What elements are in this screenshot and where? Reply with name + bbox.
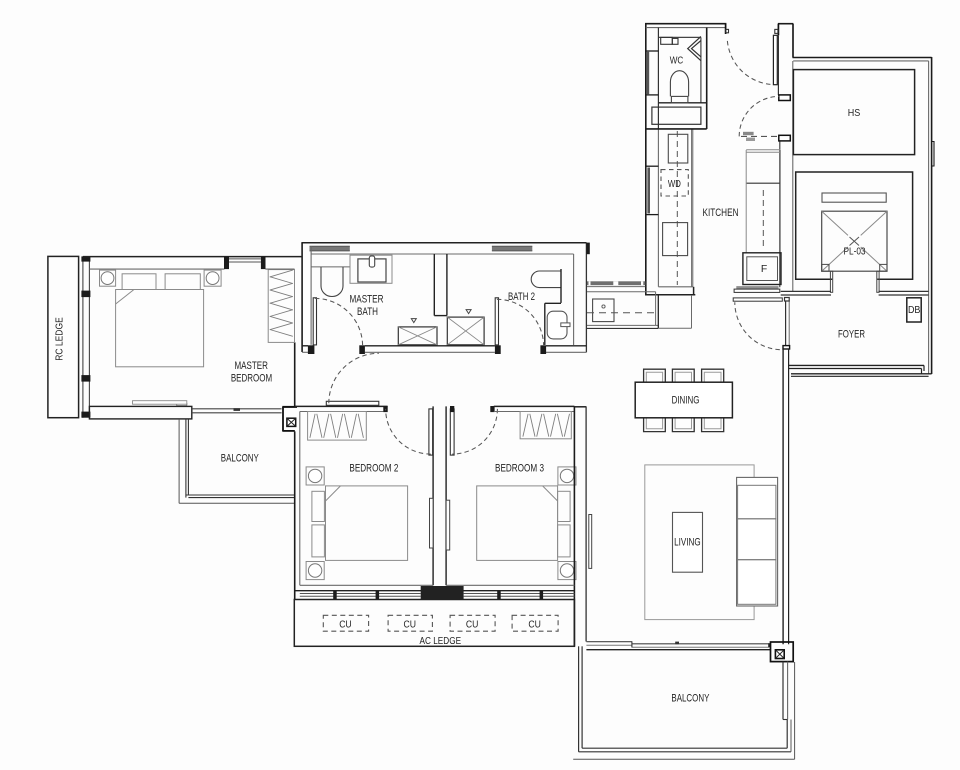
svg-text:DINING: DINING xyxy=(672,395,700,407)
svg-text:CU: CU xyxy=(404,619,417,630)
svg-text:BEDROOM 2: BEDROOM 2 xyxy=(349,463,398,475)
svg-text:BEDROOM 3: BEDROOM 3 xyxy=(495,462,544,474)
svg-text:WD: WD xyxy=(668,179,681,190)
svg-text:LIVING: LIVING xyxy=(674,537,701,549)
svg-text:CU: CU xyxy=(466,619,479,630)
svg-text:MASTER: MASTER xyxy=(350,293,384,305)
svg-text:KITCHEN: KITCHEN xyxy=(703,207,739,219)
svg-text:MASTER: MASTER xyxy=(234,360,268,372)
svg-text:F: F xyxy=(761,264,767,275)
svg-text:WC: WC xyxy=(670,55,684,66)
svg-text:BATH 2: BATH 2 xyxy=(508,291,535,303)
svg-text:BALCONY: BALCONY xyxy=(221,452,259,464)
svg-text:FOYER: FOYER xyxy=(838,328,865,340)
svg-text:BALCONY: BALCONY xyxy=(671,692,709,704)
svg-text:HS: HS xyxy=(848,108,861,119)
svg-text:BEDROOM: BEDROOM xyxy=(231,372,272,384)
svg-text:CU: CU xyxy=(339,619,352,630)
svg-text:PL-03: PL-03 xyxy=(844,247,866,258)
svg-text:AC LEDGE: AC LEDGE xyxy=(420,636,462,647)
svg-text:BATH: BATH xyxy=(357,306,378,318)
svg-text:CU: CU xyxy=(528,619,541,630)
svg-text:DB: DB xyxy=(908,305,921,316)
svg-text:RC LEDGE: RC LEDGE xyxy=(54,317,65,361)
